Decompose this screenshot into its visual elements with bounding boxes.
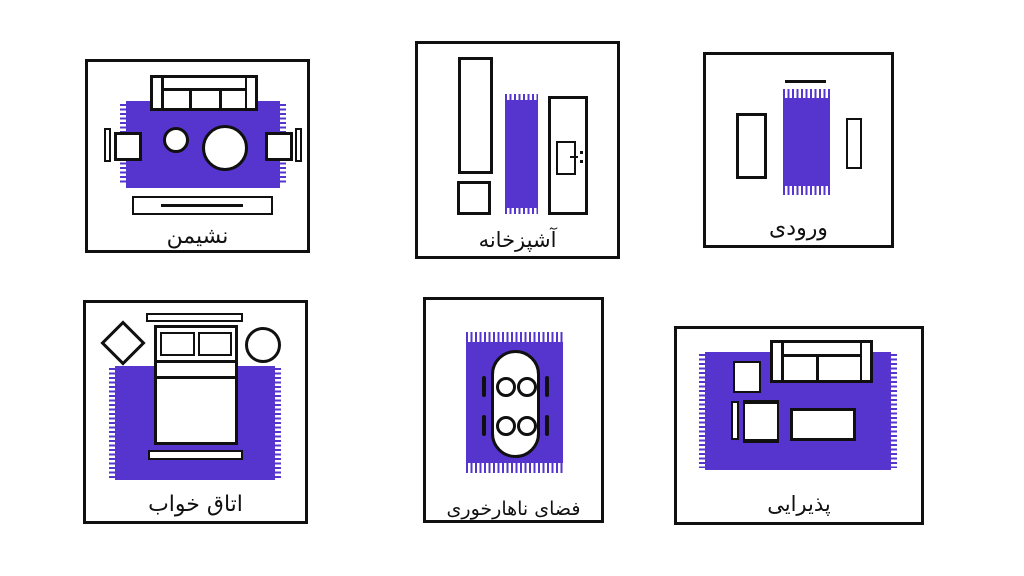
sink-icon [556,141,576,175]
chair-dash-icon [545,415,549,436]
panel-kitchen: آشپزخانه [415,41,620,259]
bed-icon [154,325,238,445]
panel-living-room: نشیمن [85,59,310,253]
rug-fringe-top [466,332,563,342]
coffee-table-icon [202,125,248,171]
tv-console-icon [132,196,273,215]
kitchen-counter-icon [458,57,493,174]
pillow-icon [198,332,232,356]
door-threshold-line [785,80,826,83]
rug-fringe-right [275,368,281,478]
panel-reception: پذیرایی [674,326,924,525]
pillow-icon [160,332,195,356]
panel-entrance: ورودی [703,52,894,248]
dining-table-icon [491,350,540,458]
plate-icon [517,377,537,397]
chair-dash-icon [545,376,549,397]
armchair-back-right-icon [295,128,302,162]
sofa-icon [150,75,258,111]
knob-dot [580,151,583,154]
kitchen-label: آشپزخانه [418,222,617,258]
chair-dash-icon [482,415,486,436]
living-room-label: نشیمن [88,219,307,255]
armchair-right-icon [265,132,293,161]
armchair-back-icon [731,401,739,440]
rug-fringe-bottom [466,463,563,473]
chair-dash-icon [482,376,486,397]
console-shelf-icon [846,118,862,169]
rug-fringe-right [891,354,897,468]
plate-icon [517,416,537,436]
rug-placement-diagram: نشیمن آشپزخانه ورودی [0,0,1024,576]
shoe-cabinet-icon [736,113,767,179]
sofa-icon [770,340,873,383]
side-table-icon [733,361,761,393]
armchair-left-icon [114,132,142,161]
coffee-table-icon [790,408,856,441]
plate-icon [496,377,516,397]
side-table-icon [163,127,189,153]
knob-dot [580,160,583,163]
panel-dining-area: فضای ناهارخوری [423,297,604,523]
runner-fringe-top [783,89,830,98]
armchair-icon [743,400,779,443]
handle-line [570,156,578,158]
kitchen-runner-rug [505,100,538,208]
armchair-back-left-icon [104,128,111,162]
bedroom-label: اتاق خواب [86,487,305,523]
panel-bedroom: اتاق خواب [83,300,308,524]
footboard-icon [148,450,243,460]
headboard-icon [146,313,243,322]
reception-label: پذیرایی [677,487,921,521]
runner-fringe-bottom [783,186,830,195]
plate-icon [496,416,516,436]
dining-area-label: فضای ناهارخوری [426,492,601,526]
runner-fringe-bottom [505,208,538,214]
stool-icon [245,327,281,363]
floor-cushion-icon [100,320,145,365]
kitchen-cabinet-small-icon [457,181,491,215]
entrance-runner-rug [783,98,830,186]
entrance-label: ورودی [706,211,891,247]
